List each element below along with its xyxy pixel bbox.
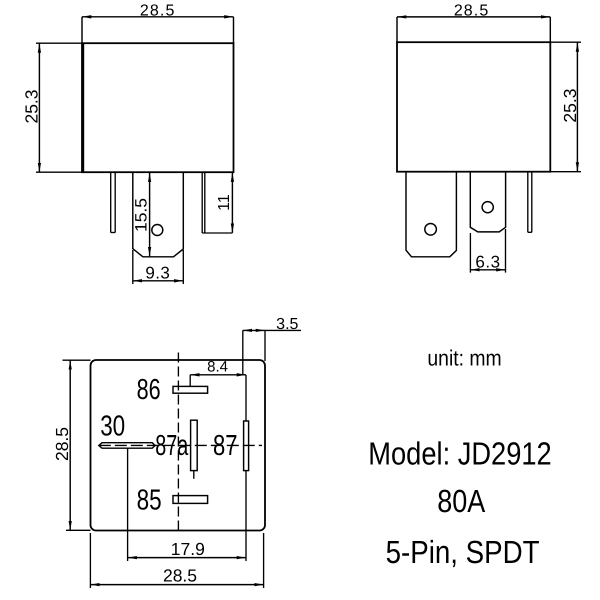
svg-text:11: 11 (216, 194, 233, 211)
svg-text:25.3: 25.3 (22, 89, 42, 123)
svg-text:86: 86 (137, 374, 161, 406)
svg-text:9.3: 9.3 (145, 264, 170, 283)
svg-text:15.5: 15.5 (132, 198, 150, 232)
svg-text:85: 85 (137, 485, 162, 517)
svg-text:Model: JD2912: Model: JD2912 (368, 435, 551, 471)
svg-text:17.9: 17.9 (171, 539, 205, 559)
svg-text:25.3: 25.3 (560, 89, 580, 123)
svg-text:28.5: 28.5 (163, 566, 197, 586)
svg-text:6.3: 6.3 (475, 253, 500, 272)
svg-text:80A: 80A (437, 483, 486, 519)
svg-text:unit: mm: unit: mm (427, 346, 501, 371)
svg-text:3.5: 3.5 (276, 316, 298, 333)
svg-text:5-Pin, SPDT: 5-Pin, SPDT (386, 534, 540, 570)
svg-text:28.5: 28.5 (52, 427, 72, 461)
svg-text:28.5: 28.5 (140, 3, 176, 20)
svg-text:28.5: 28.5 (454, 3, 490, 20)
svg-text:8.4: 8.4 (207, 359, 228, 376)
svg-text:30: 30 (100, 411, 125, 443)
